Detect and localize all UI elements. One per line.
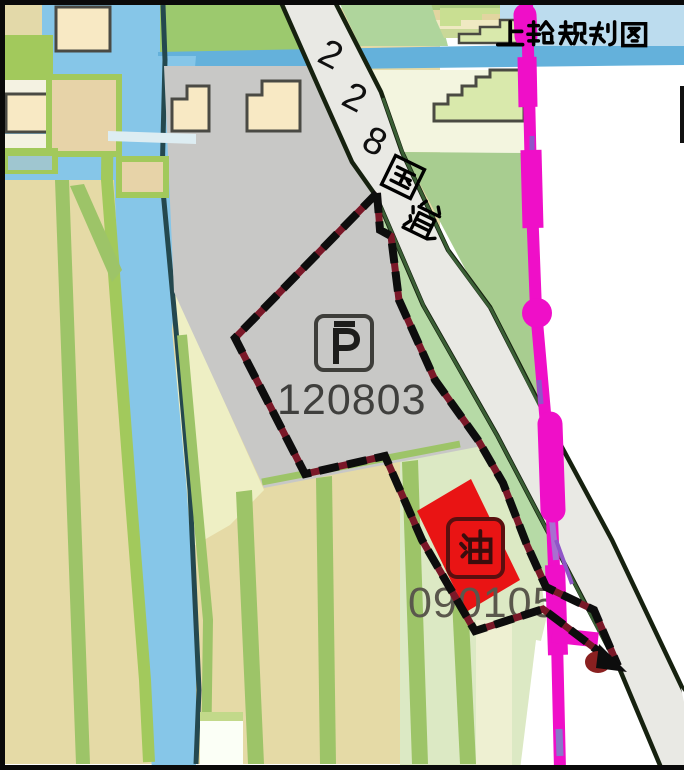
- svg-text:120803: 120803: [277, 376, 427, 424]
- svg-text:090105: 090105: [408, 579, 558, 627]
